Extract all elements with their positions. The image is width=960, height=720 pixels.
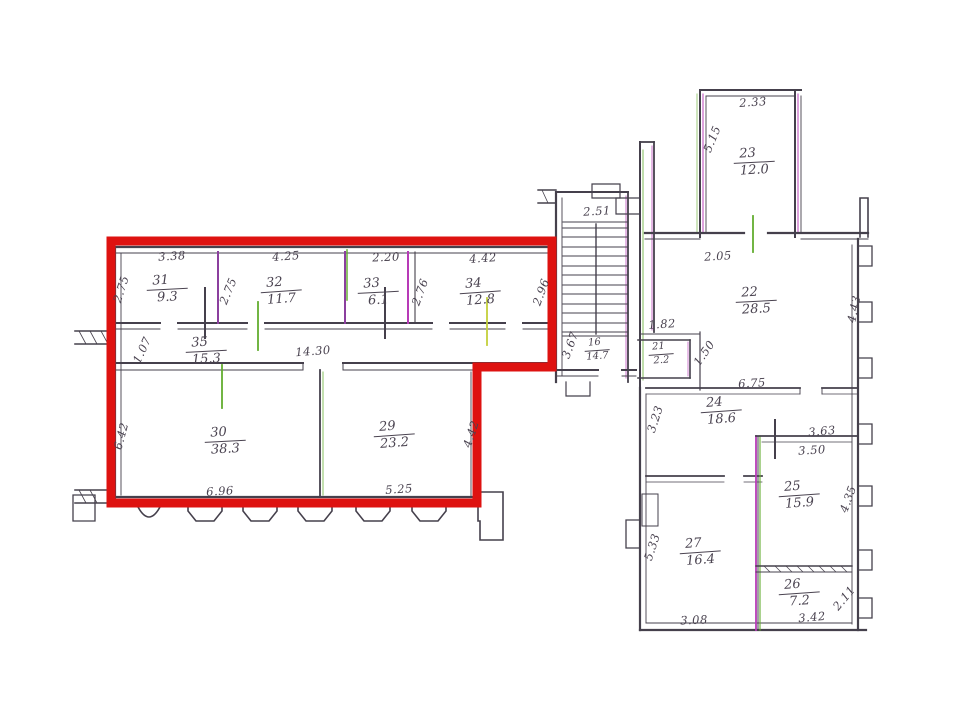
room-label-29: 29 23.2 <box>373 418 416 451</box>
top-room-23-walls <box>697 90 868 237</box>
dim-label: 14.30 <box>295 343 331 359</box>
room-area: 12.8 <box>466 291 496 308</box>
room-label-34: 34 12.8 <box>459 275 502 308</box>
room-label-16-stairs: 16 14.7 <box>584 337 610 363</box>
room-label-32: 32 11.7 <box>260 274 303 307</box>
room-label-25: 25 15.9 <box>778 478 821 511</box>
room-label-26: 26 7.2 <box>778 576 821 609</box>
room-area: 2.2 <box>653 354 670 367</box>
dim-label: 2.51 <box>583 203 611 218</box>
dim-label: 4.25 <box>272 248 301 264</box>
dim-label: 6.75 <box>738 375 766 390</box>
dim-label: 3.63 <box>808 423 837 439</box>
room-area: 28.5 <box>742 301 772 317</box>
room-number: 21 <box>648 341 674 355</box>
room-area: 15.9 <box>785 494 815 511</box>
room-area: 15.3 <box>192 351 222 367</box>
room-area: 16.4 <box>686 551 716 568</box>
dim-label: 2.33 <box>739 94 768 110</box>
room-area: 9.3 <box>157 289 178 305</box>
room-label-30: 30 38.3 <box>204 425 246 457</box>
dim-label: 3.42 <box>798 609 827 625</box>
room-area: 12.0 <box>740 162 770 178</box>
dim-label: 3.38 <box>158 248 186 263</box>
room-area: 23.2 <box>380 434 410 451</box>
floorplan-page: 31 9.3 32 11.7 33 6.1 34 12.8 35 15.3 30… <box>0 0 960 720</box>
dim-label: 3.50 <box>798 442 826 457</box>
room-label-21: 21 2.2 <box>648 341 674 367</box>
room-area: 11.7 <box>267 290 297 307</box>
dim-label: 3.08 <box>680 613 708 628</box>
room-area: 6.1 <box>368 292 389 308</box>
dim-label: 2.20 <box>372 250 400 265</box>
room-number: 31 <box>146 273 187 291</box>
room-label-31: 31 9.3 <box>146 273 188 305</box>
dim-label: 4.42 <box>469 250 498 266</box>
room-label-33: 33 6.1 <box>357 276 399 308</box>
room-area: 18.6 <box>707 410 737 427</box>
room-label-22: 22 28.5 <box>735 285 777 317</box>
room-area: 38.3 <box>211 441 241 457</box>
dim-label: 6.96 <box>206 483 234 498</box>
room-label-35: 35 15.3 <box>185 335 227 367</box>
room-label-23: 23 12.0 <box>733 146 775 178</box>
room-number: 26 <box>778 576 820 594</box>
dim-label: 2.05 <box>704 248 732 263</box>
dim-label: 5.25 <box>385 481 414 497</box>
room-area: 14.7 <box>586 350 609 363</box>
room-number: 33 <box>357 276 398 294</box>
room-area: 7.2 <box>789 593 811 609</box>
room-label-27: 27 16.4 <box>679 535 722 568</box>
dim-label: 1.82 <box>648 316 677 332</box>
room-label-24: 24 18.6 <box>700 394 743 427</box>
